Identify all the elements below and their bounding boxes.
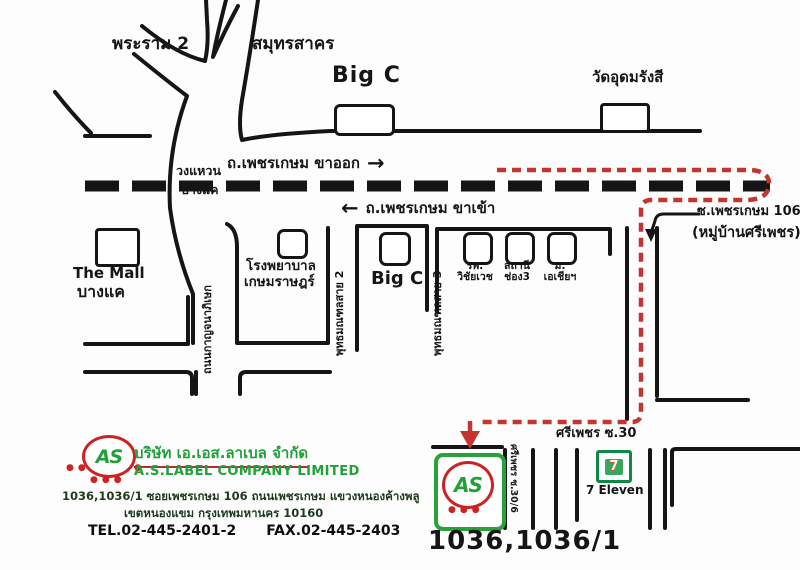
landmark-wichaiwet-line2: วิชัยเวช	[453, 272, 497, 283]
label-destination-house-no: 1036,1036/1	[428, 528, 621, 555]
label-landmark-channel3: สถานี ช่อง3	[496, 261, 538, 283]
location-map: พระราม 2 สมุทรสาคร Big C วัดอุดมรังสี ถ.…	[0, 0, 800, 570]
label-the-mall-line2: บางแค	[77, 284, 125, 301]
phetkasem-outbound-text: ถ.เพชรเกษม ขาออก	[227, 151, 360, 175]
label-seven-eleven: 7 Eleven	[586, 484, 643, 497]
label-sriphet-village: (หมู่บ้านศรีเพชร)	[692, 226, 800, 241]
label-ring-road-line1: วงแหวน	[176, 164, 221, 177]
road-east-street-lower	[672, 449, 800, 505]
logo-decoration: ●●	[66, 463, 90, 473]
road-fork-notch	[213, 0, 238, 57]
company-tel: TEL.02-445-2401-2	[88, 523, 236, 539]
label-soi-phetkasem-106: ซ.เพชรเกษม 106	[697, 205, 800, 219]
label-sriphet-soi30: ศรีเพชร ซ.30	[556, 427, 636, 441]
road-cross-street-west-top	[85, 297, 188, 344]
label-sriphet-soi30-6: ศรีเพชร ซ.30/6	[506, 444, 521, 524]
label-landmark-wichaiwet: รพ. วิชัยเวช	[453, 261, 497, 283]
phetkasem-inbound-text: ถ.เพชรเกษม ขาเข้า	[366, 196, 496, 220]
seven-eleven-logo-icon: 7	[605, 459, 623, 475]
road-ringroad-left-edge	[134, 54, 193, 343]
label-wat-udom-rangsi: วัดอุดมรังสี	[592, 70, 663, 86]
logo-decoration: ●●●	[90, 475, 126, 485]
label-phutthamonthon-sai3: พุทธมณฑลสาย 3	[429, 234, 447, 356]
label-ring-road-vertical: ถนนกาญจนาภิเษก	[199, 246, 217, 374]
label-landmark-asia-university: ม. เอเชียฯ	[538, 261, 582, 283]
label-ring-road-line2: บางแค	[181, 183, 218, 196]
label-bigc-north: Big C	[332, 64, 401, 87]
label-samut-sakhon: สมุทรสาคร	[252, 36, 334, 54]
landmark-asia-line2: เอเชียฯ	[538, 272, 582, 283]
label-bigc-south: Big C	[371, 270, 423, 289]
arrow-right-icon: →	[367, 153, 385, 174]
road-cross-street-east-bottom	[240, 372, 330, 394]
company-address-line2: เขตหนองแขม กรุงเทพมหานคร 10160	[124, 505, 323, 523]
bigc-south-building	[379, 232, 411, 266]
seven-eleven-building: 7	[596, 450, 632, 483]
hospital-building	[277, 229, 308, 259]
logo-decoration: ●●●	[448, 505, 484, 515]
seven-eleven-logo-text: 7	[609, 460, 618, 473]
label-hospital-line2: เกษมราษฎร์	[244, 275, 315, 289]
label-hospital-line1: โรงพยาบาล	[246, 259, 316, 273]
label-phetkasem-outbound: ถ.เพชรเกษม ขาออก →	[227, 151, 385, 175]
label-phutthamonthon-sai2: พุทธมณฑลสาย 2	[331, 234, 349, 356]
company-as-logo-text: AS	[96, 446, 122, 468]
company-name-english: A.S.LABEL COMPANY LIMITED	[134, 464, 360, 479]
destination-as-logo: AS ●●●	[442, 461, 494, 509]
as-logo-circle: AS	[442, 461, 494, 509]
label-phetkasem-inbound: ← ถ.เพชรเกษม ขาเข้า	[341, 196, 495, 220]
road-cross-street-west-bottom	[85, 372, 192, 394]
company-as-logo: AS ●● ●●● ●	[82, 435, 136, 478]
company-fax: FAX.02-445-2403	[266, 523, 400, 539]
label-the-mall-line1: The Mall	[73, 266, 145, 282]
company-address-line1: 1036,1036/1 ซอยเพชรเกษม 106 ถนนเพชรเกษม …	[62, 488, 420, 506]
company-as-logo-circle: AS	[82, 435, 136, 478]
wat-building	[600, 103, 650, 133]
as-logo-text: AS	[454, 473, 482, 497]
label-rama2-road: พระราม 2	[112, 36, 189, 54]
arrow-left-icon: ←	[341, 198, 359, 219]
company-phone-line: TEL.02-445-2401-2 FAX.02-445-2403	[88, 523, 400, 539]
bigc-north-building	[334, 104, 395, 136]
the-mall-building	[95, 228, 140, 267]
road-slip-curve	[55, 92, 91, 133]
landmark-channel3-line2: ช่อง3	[496, 272, 538, 283]
